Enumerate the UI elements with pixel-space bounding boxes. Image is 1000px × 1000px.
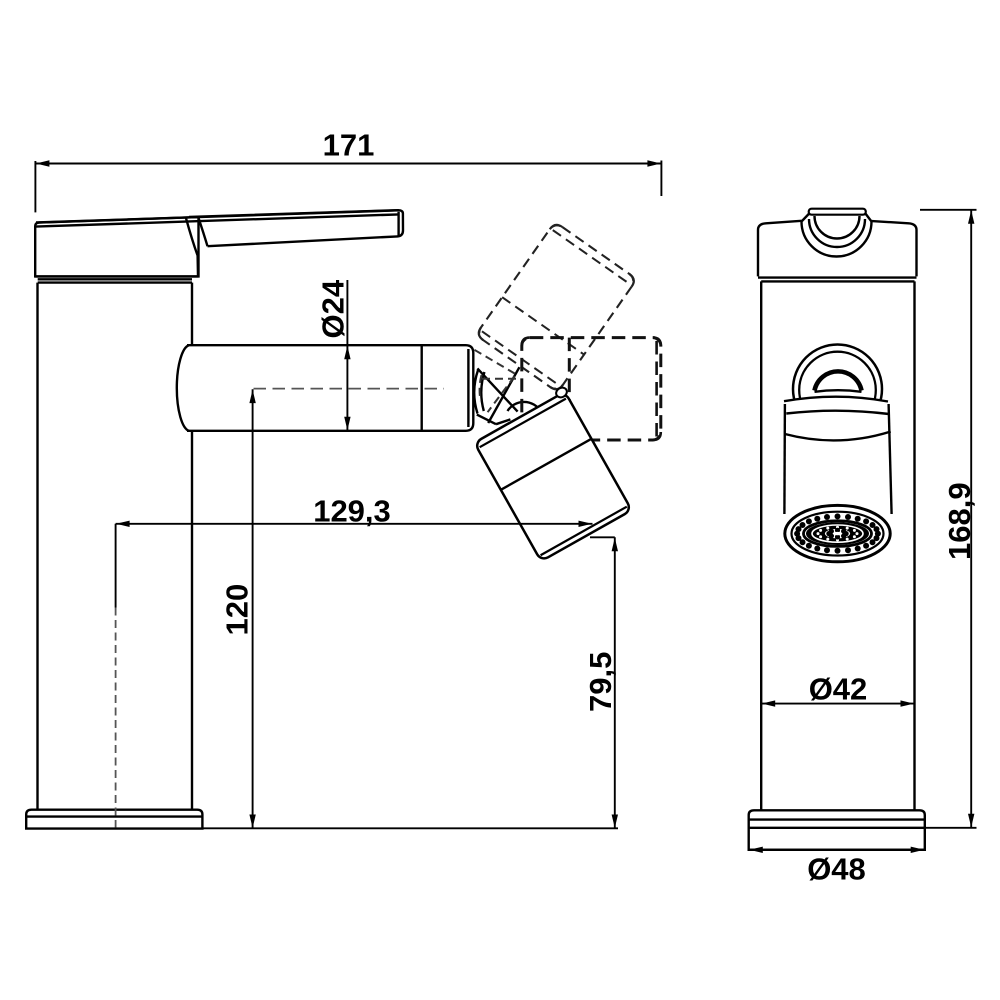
- svg-text:Ø24: Ø24: [316, 279, 351, 338]
- svg-text:171: 171: [323, 128, 375, 163]
- svg-text:129,3: 129,3: [313, 494, 391, 529]
- svg-text:168,9: 168,9: [942, 482, 977, 560]
- svg-text:Ø42: Ø42: [809, 672, 868, 707]
- svg-text:Ø48: Ø48: [807, 852, 866, 887]
- svg-text:120: 120: [220, 584, 255, 636]
- svg-text:79,5: 79,5: [583, 652, 618, 712]
